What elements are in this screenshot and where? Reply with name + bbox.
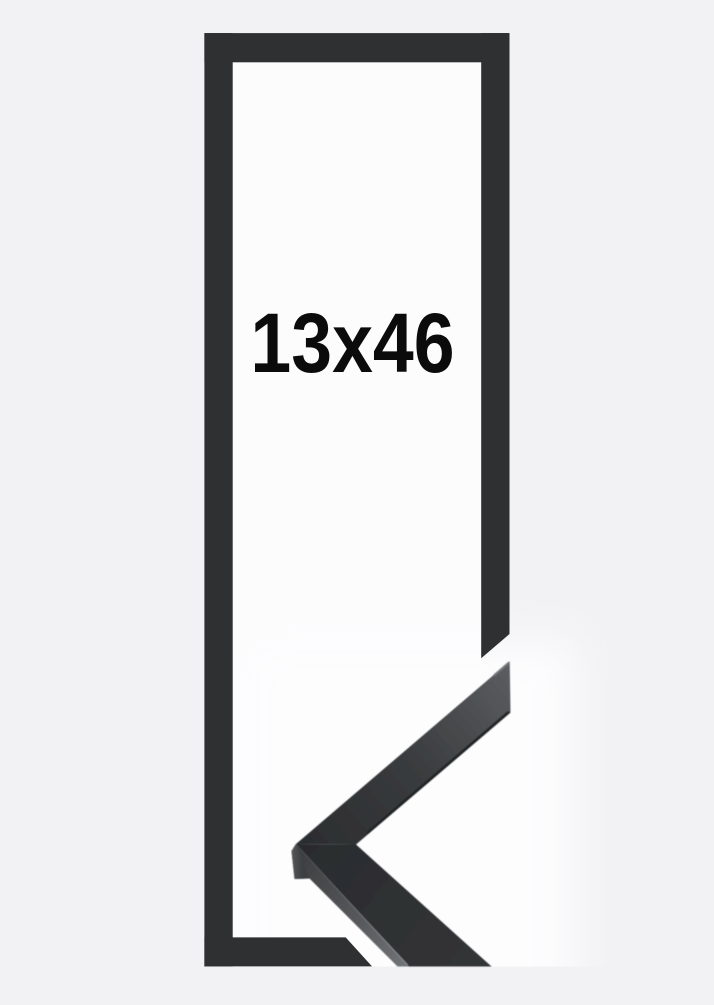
svg-text:13x46: 13x46 (250, 296, 454, 390)
